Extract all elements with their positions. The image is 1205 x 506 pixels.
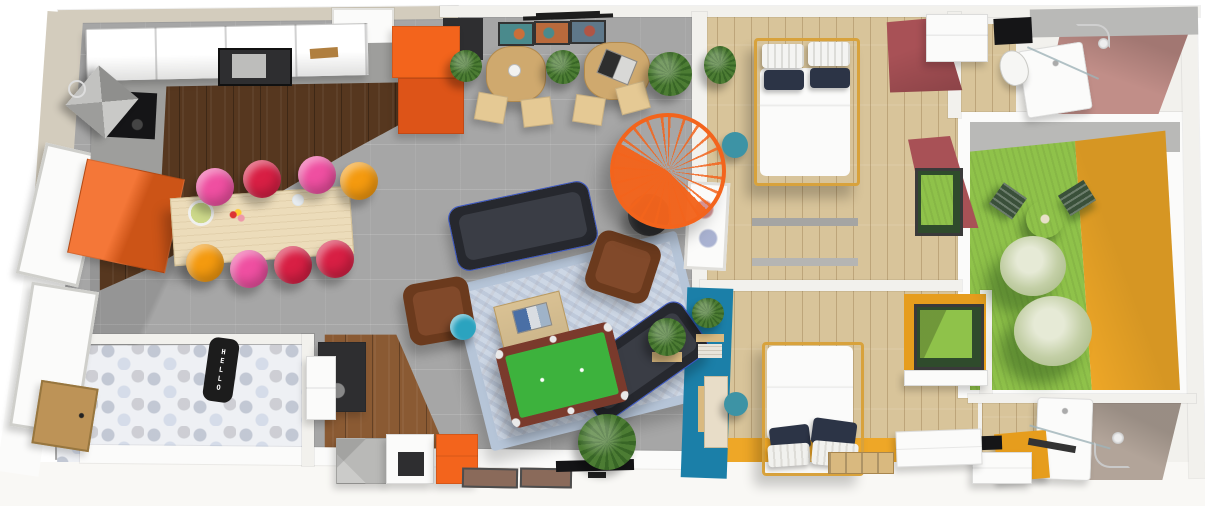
- bed1-pillow-navy-1: [764, 70, 804, 90]
- tv-stand: [588, 472, 606, 478]
- washer-dark[interactable]: [993, 17, 1032, 45]
- potted-plant-3[interactable]: [648, 52, 692, 96]
- bed1-pillow-white-1: [762, 44, 804, 68]
- bed1-pillow-white-2: [808, 42, 850, 66]
- water-glass[interactable]: [292, 194, 304, 206]
- bedroom2-teal-chair[interactable]: [724, 392, 748, 416]
- bistro-table[interactable]: [1026, 200, 1064, 238]
- shelf-plant[interactable]: [648, 318, 686, 356]
- spiral-staircase[interactable]: [610, 113, 726, 229]
- cafe-chair-3[interactable]: [572, 94, 606, 126]
- utility-wall-cabinets[interactable]: [306, 356, 336, 420]
- bedroom2-window-grass: [920, 310, 972, 358]
- bedroom1-teal-stool[interactable]: [722, 132, 748, 158]
- bar-stool-pink-1[interactable]: [196, 168, 234, 206]
- orange-base-cabinet[interactable]: [67, 159, 185, 274]
- front-door[interactable]: [31, 380, 98, 452]
- patio-tree-1[interactable]: [1000, 236, 1066, 296]
- potted-plant-1[interactable]: [450, 50, 482, 82]
- pool-table-felt: [505, 332, 619, 419]
- window-grass-view: [921, 175, 953, 225]
- wall-art-panel-2: [534, 21, 570, 45]
- cutting-board[interactable]: [310, 47, 339, 59]
- bar-stool-orange-1[interactable]: [340, 162, 378, 200]
- bedroom1-bottom-wall: [700, 280, 962, 291]
- shower-head-1[interactable]: [1098, 38, 1109, 49]
- bed1-pillow-navy-2: [810, 68, 850, 88]
- bedroom2-window-sill-shelf[interactable]: [904, 370, 988, 386]
- bedroom1-sliding-door-frame2[interactable]: [752, 258, 858, 266]
- bathroom1-counter: [1030, 7, 1198, 38]
- armchair-seat: [593, 239, 652, 296]
- bedroom2-dresser[interactable]: [895, 429, 982, 468]
- white-cube-opening: [398, 452, 424, 476]
- bedroom1-plant[interactable]: [704, 46, 736, 84]
- potted-plant-2[interactable]: [546, 50, 580, 84]
- coffee-cup[interactable]: [508, 64, 521, 77]
- bar-stool-pink-2[interactable]: [298, 156, 336, 194]
- floorplan-canvas: HELLO: [0, 0, 1205, 506]
- fruit-platter[interactable]: [222, 206, 254, 228]
- patio-tree-2[interactable]: [1014, 296, 1092, 366]
- bar-stool-orange-2[interactable]: [186, 244, 224, 282]
- wall-art-panel-3: [570, 20, 606, 44]
- bar-stool-red-2[interactable]: [274, 246, 312, 284]
- shelf-wall-plant[interactable]: [692, 298, 724, 328]
- bar-stool-pink-3[interactable]: [230, 250, 268, 288]
- sink-basin: [232, 54, 266, 78]
- gray-appliance[interactable]: [336, 438, 388, 484]
- wall-shelf-1[interactable]: [696, 334, 724, 342]
- bar-stool-red-1[interactable]: [243, 160, 281, 198]
- bed2-pillow-white-1: [767, 443, 810, 468]
- book-stack[interactable]: [698, 344, 722, 358]
- shower-head-2[interactable]: [1112, 432, 1124, 444]
- shower-tray-1[interactable]: [1017, 41, 1093, 118]
- cafe-chair-1[interactable]: [474, 92, 508, 125]
- shower-hose-2: [1094, 442, 1130, 468]
- orange-tall-cabinet-lower[interactable]: [398, 78, 464, 134]
- bench-crates[interactable]: [828, 452, 894, 474]
- wall-art-panel-1: [498, 22, 534, 46]
- table-lamp[interactable]: [450, 314, 476, 340]
- picture-frame-1[interactable]: [462, 468, 518, 489]
- doormat-label: HELLO: [214, 347, 228, 393]
- smoke-detector: [68, 80, 86, 98]
- floor-plant-large[interactable]: [578, 414, 636, 470]
- cafe-chair-2[interactable]: [520, 96, 553, 127]
- bedroom1-sliding-door-frame[interactable]: [752, 218, 858, 226]
- bedroom1-wardrobe[interactable]: [926, 14, 988, 62]
- bar-stool-red-3[interactable]: [316, 240, 354, 278]
- bedroom2-desk[interactable]: [704, 376, 728, 448]
